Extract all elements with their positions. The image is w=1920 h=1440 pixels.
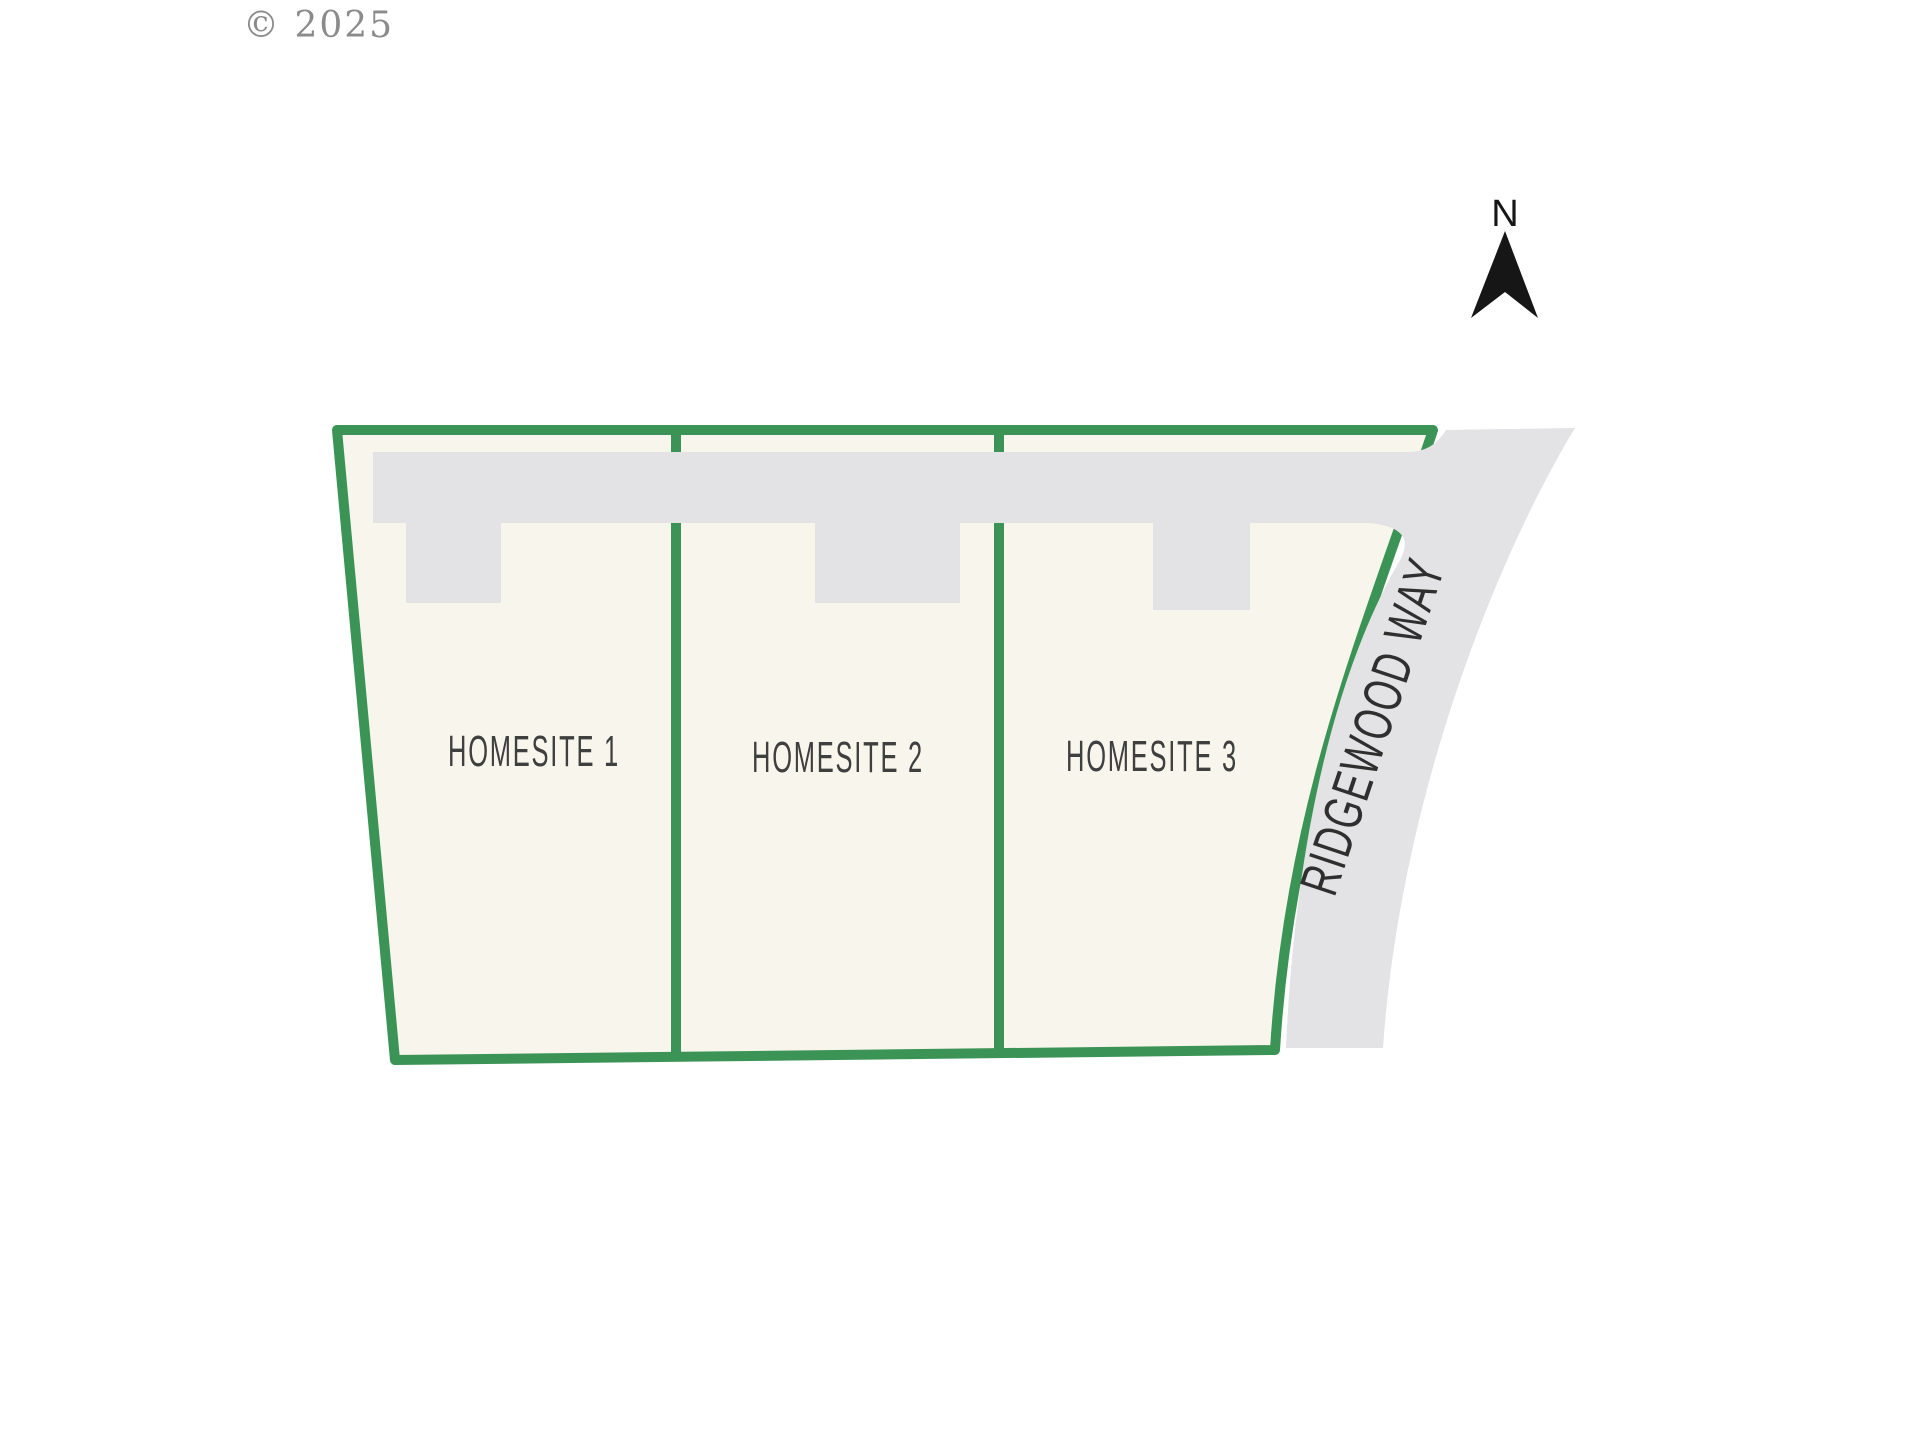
north-arrow: N	[1471, 193, 1538, 318]
lot-1-label: HOMESITE 1	[448, 726, 620, 776]
north-arrow-icon	[1471, 231, 1538, 318]
site-plan-canvas: HOMESITE 1 HOMESITE 2 HOMESITE 3 RIDGEWO…	[0, 0, 1920, 1440]
lot-3-label: HOMESITE 3	[1066, 731, 1238, 781]
driveway-pad-3	[1153, 518, 1250, 610]
north-arrow-letter: N	[1491, 193, 1518, 235]
copyright-text: © 2025	[243, 5, 394, 46]
driveway-pad-1	[406, 518, 501, 603]
plat-map-page: HOMESITE 1 HOMESITE 2 HOMESITE 3 RIDGEWO…	[0, 0, 1920, 1440]
driveway-pad-2	[815, 518, 960, 603]
lot-2-label: HOMESITE 2	[752, 732, 924, 782]
